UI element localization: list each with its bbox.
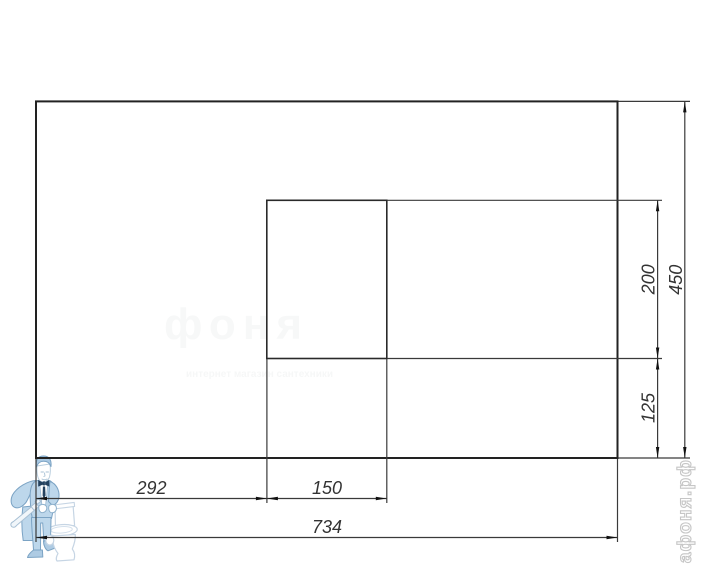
- svg-text:200: 200: [639, 264, 659, 295]
- svg-text:150: 150: [312, 478, 342, 498]
- svg-text:125: 125: [639, 392, 659, 423]
- svg-text:афоня.рф: афоня.рф: [675, 459, 696, 563]
- svg-text:450: 450: [666, 265, 686, 295]
- svg-text:734: 734: [312, 517, 342, 537]
- svg-text:интернет магазин сантехники: интернет магазин сантехники: [186, 369, 333, 380]
- svg-text:фоня: фоня: [164, 300, 309, 349]
- svg-text:292: 292: [135, 478, 166, 498]
